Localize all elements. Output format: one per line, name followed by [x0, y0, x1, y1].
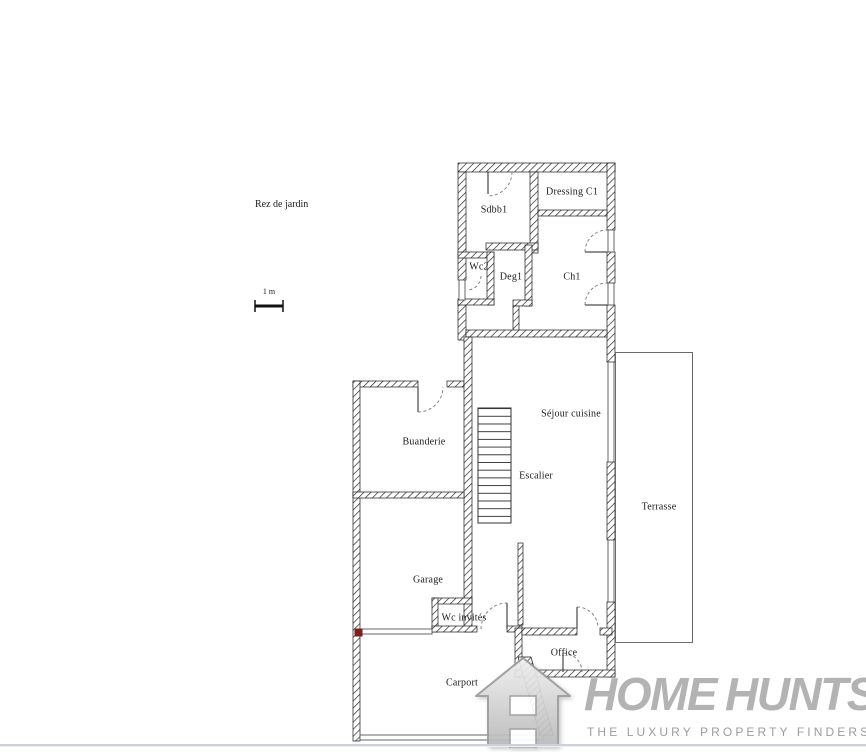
bottom-divider	[0, 744, 866, 747]
room-label-terrasse: Terrasse	[642, 502, 677, 513]
scale-label: 1 m	[263, 287, 275, 296]
room-label-wc-invites: Wc invités	[441, 613, 486, 624]
room-label-ch1: Ch1	[563, 272, 580, 283]
floor-plan-drawing	[0, 0, 866, 752]
room-label-garage: Garage	[413, 575, 443, 586]
room-label-sejour: Séjour cuisine	[541, 409, 601, 420]
scale-bar	[255, 300, 283, 312]
staircase	[478, 408, 511, 523]
room-label-wc2: Wc2	[469, 262, 488, 273]
terrasse-outline	[616, 353, 693, 643]
room-label-dressing: Dressing C1	[546, 187, 598, 198]
red-marker	[355, 629, 363, 637]
room-label-escalier: Escalier	[519, 471, 553, 482]
room-label-sdbb1: Sdbb1	[481, 205, 508, 216]
floor-title: Rez de jardin	[255, 199, 308, 210]
room-label-office: Office	[551, 648, 578, 659]
room-label-deg1: Deg1	[500, 272, 522, 283]
floorplan-page: Rez de jardin 1 m Sdbb1 Dressing C1 Wc2 …	[0, 0, 866, 752]
room-label-carport: Carport	[446, 678, 478, 689]
room-label-buanderie: Buanderie	[403, 437, 446, 448]
